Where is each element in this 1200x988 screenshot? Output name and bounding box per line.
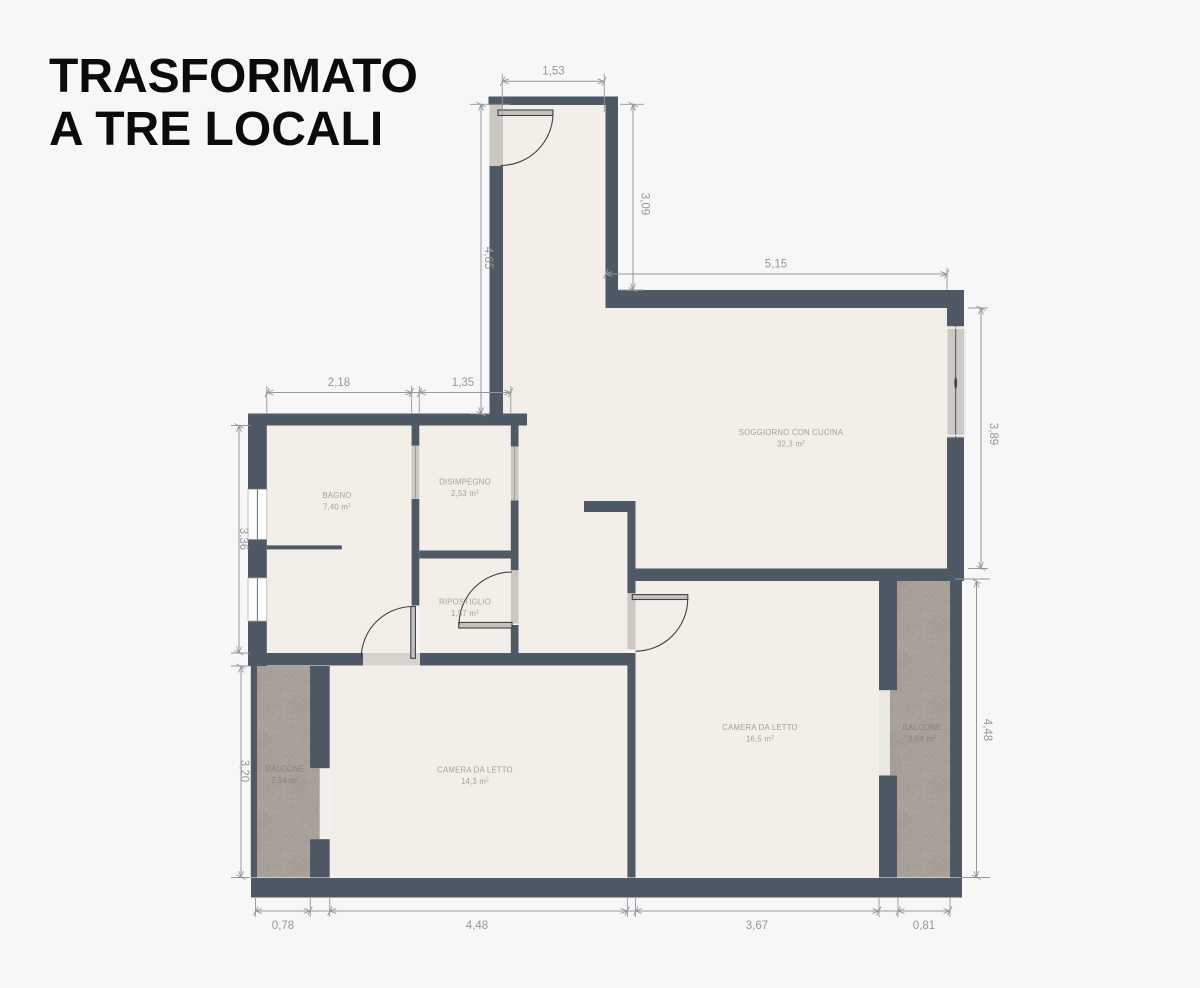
- svg-text:1,35: 1,35: [452, 377, 474, 389]
- svg-text:1,57 m2: 1,57 m2: [451, 609, 479, 618]
- svg-text:4,48: 4,48: [981, 719, 993, 741]
- svg-text:CAMERA DA LETTO: CAMERA DA LETTO: [437, 766, 513, 775]
- svg-text:16,5 m2: 16,5 m2: [746, 735, 774, 744]
- svg-text:SOGGIORNO CON CUCINA: SOGGIORNO CON CUCINA: [739, 428, 844, 437]
- svg-text:3,64 m2: 3,64 m2: [908, 735, 936, 744]
- svg-text:14,3 m2: 14,3 m2: [461, 777, 489, 786]
- svg-text:4,48: 4,48: [466, 920, 488, 932]
- svg-text:3,09: 3,09: [639, 193, 651, 215]
- svg-text:3,89: 3,89: [987, 423, 999, 445]
- svg-text:1,53: 1,53: [542, 66, 564, 78]
- svg-text:2,53 m2: 2,53 m2: [451, 489, 479, 498]
- svg-text:3,36: 3,36: [237, 528, 249, 550]
- svg-text:2,18: 2,18: [328, 377, 350, 389]
- svg-text:BALCONE: BALCONE: [266, 765, 305, 774]
- svg-text:3,67: 3,67: [746, 920, 768, 932]
- svg-text:DISIMPEGNO: DISIMPEGNO: [439, 478, 491, 487]
- svg-text:BALCONE: BALCONE: [903, 723, 942, 732]
- svg-text:32,3 m2: 32,3 m2: [777, 440, 805, 449]
- svg-text:RIPOSTIGLIO: RIPOSTIGLIO: [439, 598, 491, 607]
- svg-text:BAGNO: BAGNO: [322, 491, 351, 500]
- svg-text:CAMERA DA LETTO: CAMERA DA LETTO: [722, 723, 798, 732]
- svg-text:0,81: 0,81: [913, 920, 935, 932]
- svg-text:2,54 m2: 2,54 m2: [271, 776, 299, 785]
- svg-text:7,40 m2: 7,40 m2: [323, 503, 351, 512]
- svg-text:0,78: 0,78: [272, 920, 294, 932]
- svg-text:5,15: 5,15: [765, 259, 787, 271]
- svg-text:3,20: 3,20: [238, 760, 250, 782]
- svg-text:4,65: 4,65: [482, 247, 494, 269]
